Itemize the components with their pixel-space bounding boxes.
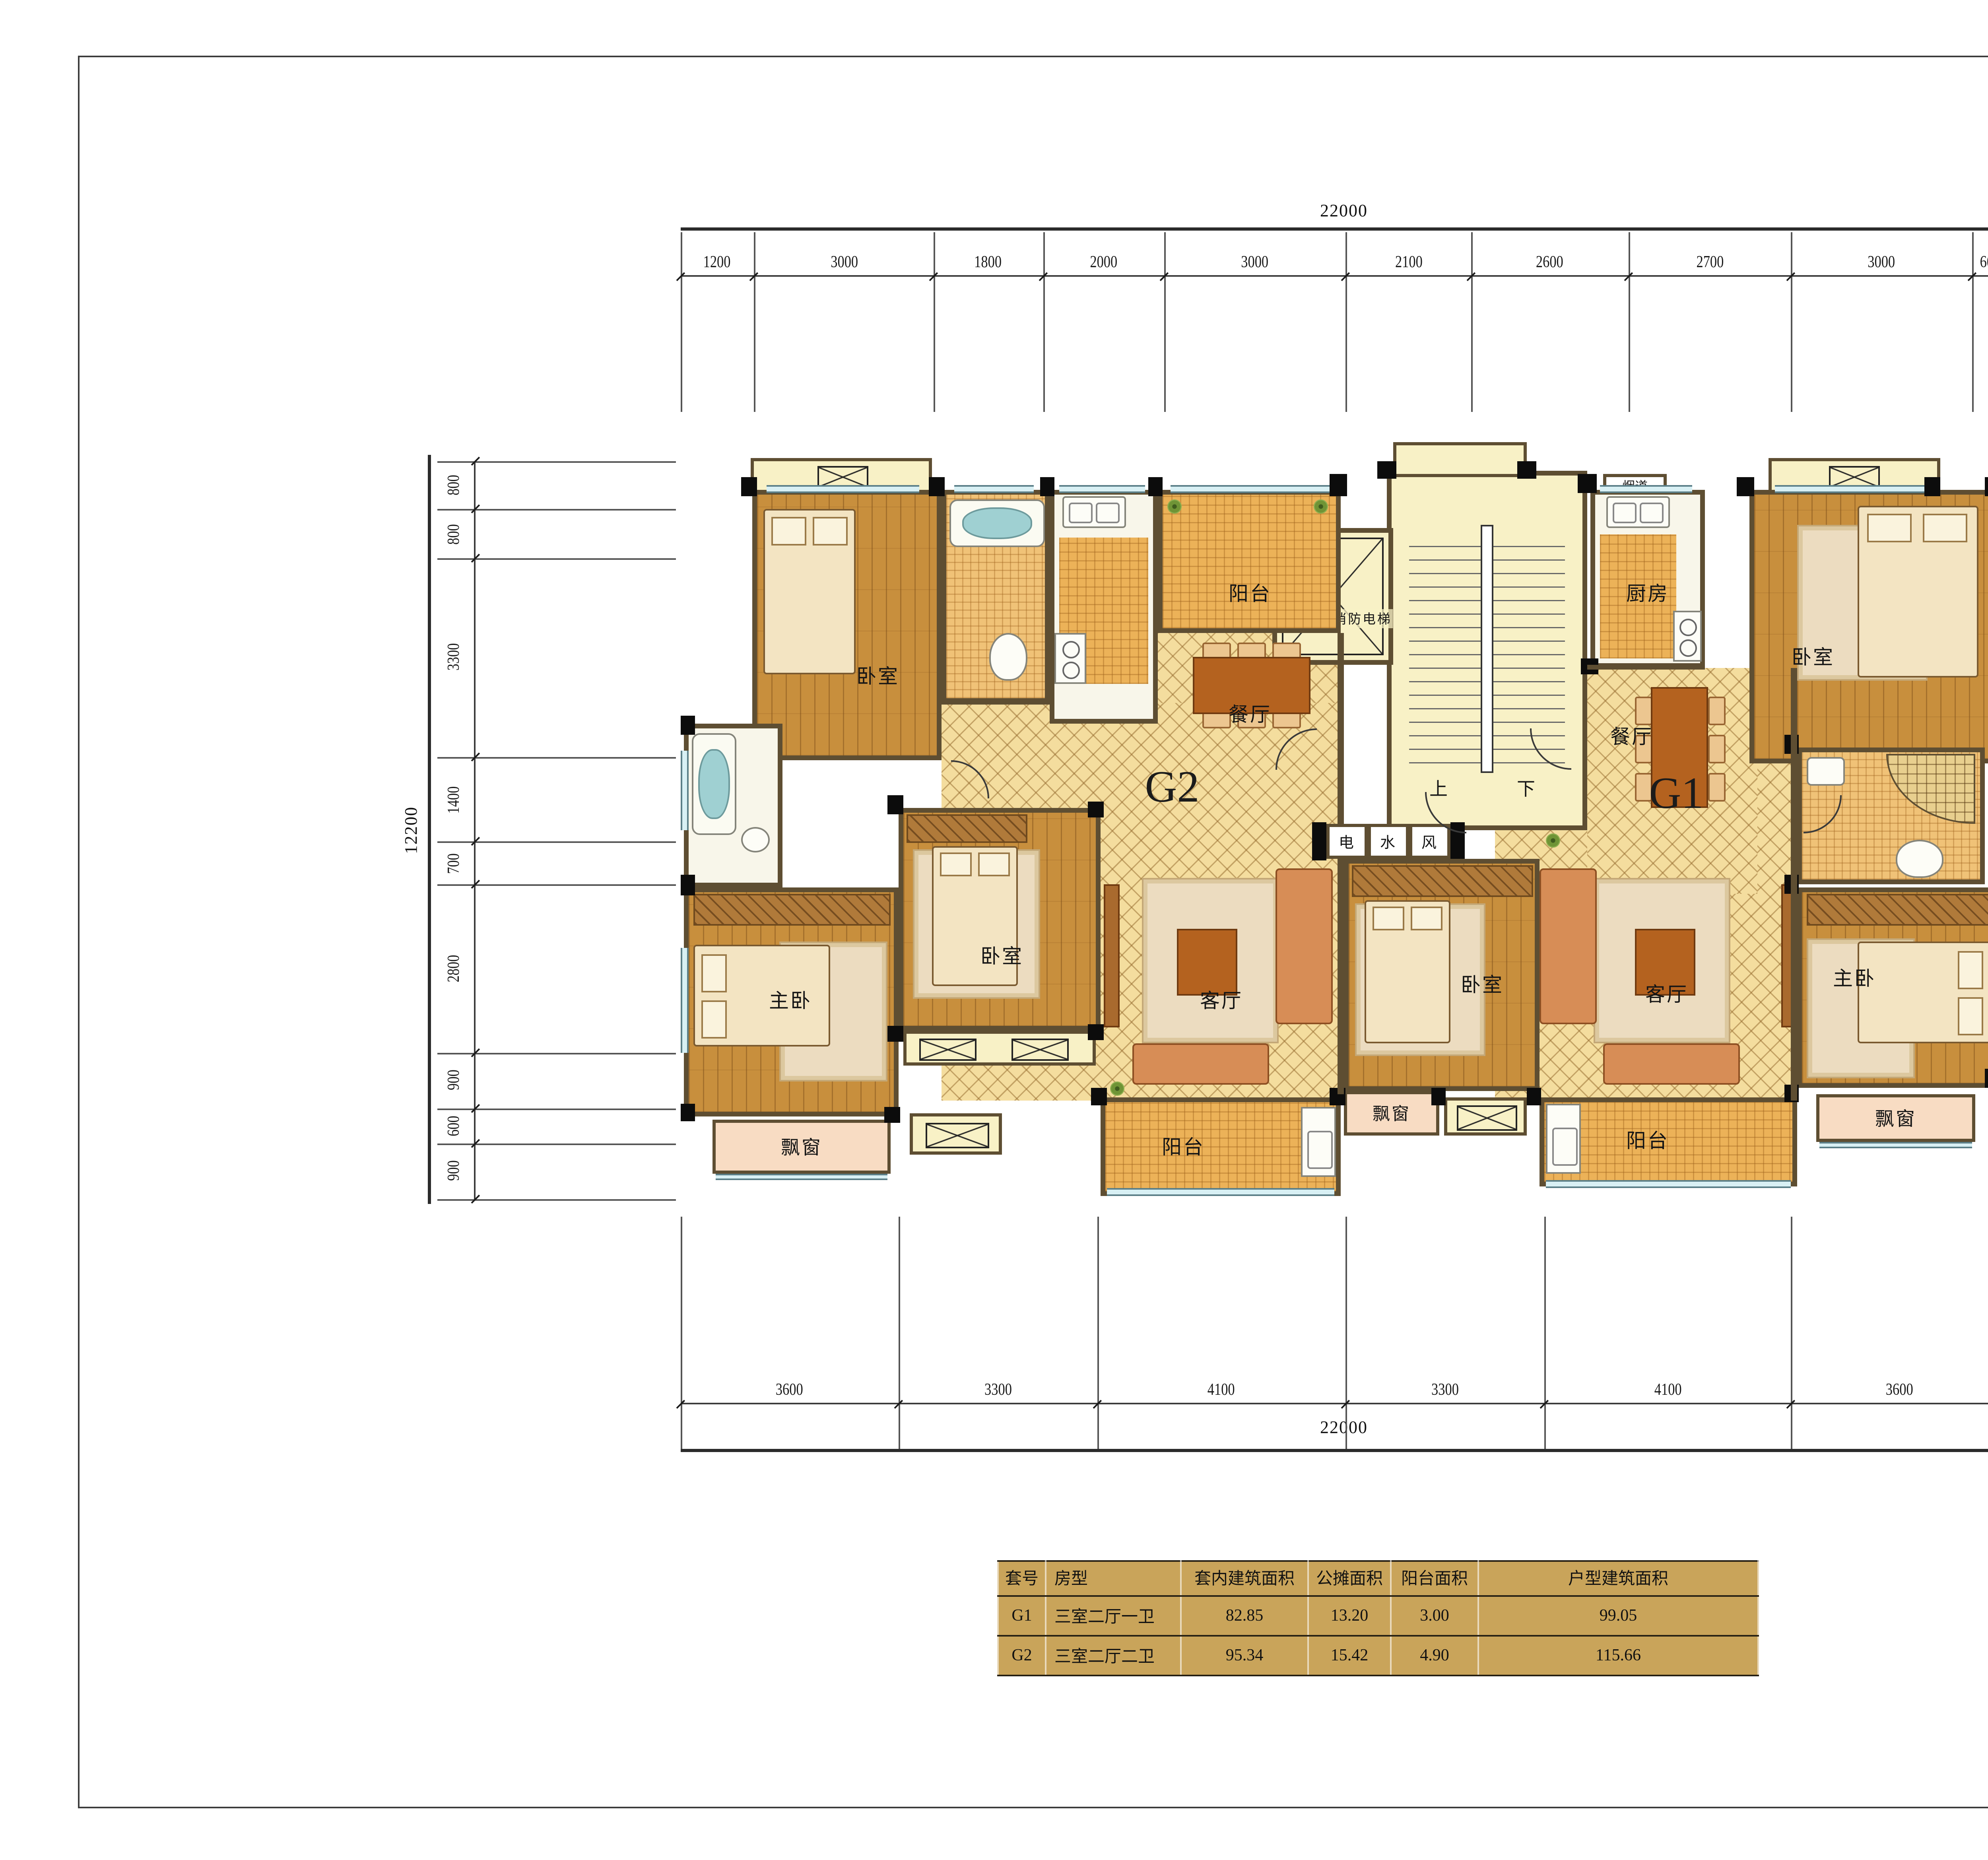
g2-balcony-north — [1158, 490, 1341, 633]
g1-balcony-laundry-sink — [1546, 1104, 1581, 1174]
g1-bath-toilet — [1896, 840, 1943, 878]
g2-bedroom-top-bed — [763, 509, 856, 674]
table-cell-r0-c2: 82.85 — [1181, 1596, 1308, 1636]
g1-balcony-south-label: 阳台 — [1626, 1124, 1669, 1154]
column — [1985, 477, 1988, 496]
wall — [1587, 665, 1705, 670]
column — [1578, 474, 1597, 493]
stair-center-rail — [1481, 525, 1493, 773]
g1-kitchen-stove — [1673, 611, 1702, 662]
column — [1924, 477, 1940, 496]
g2-balcony-north-window — [1171, 485, 1330, 492]
wall — [1338, 859, 1344, 1094]
column — [1527, 1088, 1541, 1105]
g2-kitchen-stove — [1054, 633, 1086, 684]
table-cell-r1-c0: G2 — [998, 1636, 1046, 1676]
wall — [1338, 633, 1344, 827]
g2-kitchen-sink — [1062, 496, 1126, 528]
g2-balcony-north-plant-left — [1167, 499, 1182, 514]
table-cell-r1-c3: 15.42 — [1308, 1636, 1391, 1676]
column — [1148, 477, 1163, 496]
g1-bedroom-mid-bed — [1365, 900, 1450, 1043]
g1-living-plant — [1546, 833, 1560, 848]
column — [1040, 477, 1054, 496]
g1-unit-label: G1 — [1649, 770, 1704, 821]
column — [887, 1026, 903, 1042]
water-shaft-label: 水 — [1380, 830, 1397, 852]
g1-master-bay-glass — [1819, 1142, 1972, 1148]
wall — [1791, 668, 1797, 1101]
table-cell-r0-c0: G1 — [998, 1596, 1046, 1636]
g1-south-xbay-window — [1457, 1105, 1517, 1131]
column — [1377, 461, 1396, 479]
g1-bedroom-mid-label: 卧室 — [1461, 968, 1504, 998]
column — [1985, 1069, 1988, 1088]
table-cell-r0-c3: 13.20 — [1308, 1596, 1391, 1636]
g2-balcony-north-plant-right — [1314, 499, 1328, 514]
table-cell-r0-c4: 3.00 — [1391, 1596, 1478, 1636]
g1-sofa-long — [1603, 1043, 1740, 1085]
g2-balcony-laundry-sink — [1301, 1107, 1336, 1177]
g1-living-label: 客厅 — [1645, 977, 1688, 1008]
column — [1091, 1088, 1107, 1105]
wall — [1050, 719, 1158, 724]
g1-bedroom-top-label: 卧室 — [1792, 640, 1835, 670]
g1-bedroom-top-bed — [1858, 506, 1978, 678]
g2-bath-top-toilet — [989, 633, 1027, 681]
g1-bedroom-mid-wardrobe — [1352, 865, 1533, 897]
g2-master-left-window — [681, 948, 688, 1053]
table-header-5: 户型建筑面积 — [1478, 1561, 1758, 1596]
table-cell-r1-c2: 95.34 — [1181, 1636, 1308, 1676]
g2-dining-label: 餐厅 — [1229, 697, 1272, 728]
g1-master-wardrobe — [1807, 894, 1988, 926]
g2-tv-cabinet — [1104, 884, 1120, 1027]
g2-bedroom-mid-wardrobe — [907, 814, 1027, 843]
g2-bedroom-mid-sill-window-1 — [919, 1039, 977, 1061]
column — [929, 477, 945, 496]
column — [1088, 802, 1104, 817]
table-cell-r1-c4: 4.90 — [1391, 1636, 1478, 1676]
g2-bedroom-mid-label: 卧室 — [980, 939, 1023, 969]
table-header-4: 阳台面积 — [1391, 1561, 1478, 1596]
g2-bedroom-mid-sill-window-2 — [1011, 1039, 1069, 1061]
g1-balcony-south-rail — [1546, 1180, 1791, 1187]
g1-mid-bay-label: 飘窗 — [1373, 1101, 1411, 1126]
g1-kitchen-window — [1600, 485, 1692, 492]
g2-bath-left-window — [681, 751, 688, 830]
g2-master-bath-tub — [692, 733, 736, 835]
g1-kitchen-sink — [1606, 496, 1670, 528]
column — [1088, 1024, 1104, 1040]
table-header-3: 公摊面积 — [1308, 1561, 1391, 1596]
g2-sofa-side — [1276, 868, 1333, 1024]
stair-flight-left — [1409, 534, 1482, 763]
shaft-strip-left-column — [1312, 822, 1326, 860]
column — [741, 477, 757, 496]
g2-living-label: 客厅 — [1200, 984, 1243, 1014]
table-cell-r1-c1: 三室二厅二卫 — [1046, 1636, 1181, 1676]
g2-balcony-south-rail — [1107, 1188, 1334, 1195]
column — [1330, 474, 1347, 496]
column — [681, 875, 695, 895]
g1-sofa-side — [1540, 868, 1597, 1024]
column — [1517, 461, 1536, 479]
g2-master-bay-glass — [716, 1174, 887, 1180]
g1-kitchen-label: 厨房 — [1626, 577, 1669, 607]
g1-bath-sink — [1807, 757, 1845, 786]
g2-bath-top-tub — [949, 499, 1045, 547]
g1-dining-chair — [1708, 735, 1726, 763]
g2-kitchen-window — [1059, 485, 1145, 492]
g2-south-xbay-window — [926, 1123, 989, 1148]
g2-balcony-south-label: 阳台 — [1162, 1130, 1205, 1160]
column — [887, 795, 903, 814]
column — [1431, 1088, 1446, 1105]
g2-master-bay-label: 飘窗 — [781, 1133, 822, 1160]
g2-master-label: 主卧 — [769, 984, 812, 1014]
g2-bedroom-top-label: 卧室 — [856, 659, 899, 689]
g1-dining-chair — [1708, 697, 1726, 725]
g2-master-wardrobe — [693, 894, 891, 926]
floor-plan-sheet: 22000 1200300018002000300021002600270030… — [0, 0, 1988, 1860]
table-cell-r0-c5: 99.05 — [1478, 1596, 1758, 1636]
stairwell-top-bay — [1393, 442, 1527, 477]
g2-bedroom-top-window — [767, 485, 919, 492]
g2-living-plant — [1110, 1081, 1124, 1096]
g1-dining-label: 餐厅 — [1610, 720, 1653, 750]
column — [1737, 477, 1754, 496]
g2-sofa-long — [1132, 1043, 1269, 1085]
g2-balcony-north-label: 阳台 — [1229, 577, 1272, 607]
table-cell-r0-c1: 三室二厅一卫 — [1046, 1596, 1181, 1636]
g2-bath-top-window — [954, 485, 1034, 492]
table-header-2: 套内建筑面积 — [1181, 1561, 1308, 1596]
g2-master-bath-sink — [741, 827, 770, 852]
table-cell-r1-c5: 115.66 — [1478, 1636, 1758, 1676]
unit-area-table: 套号房型套内建筑面积公摊面积阳台面积户型建筑面积G1三室二厅一卫82.8513.… — [997, 1560, 1759, 1676]
table-header-1: 房型 — [1046, 1561, 1181, 1596]
vent-shaft-label: 风 — [1421, 830, 1438, 852]
g2-unit-label: G2 — [1145, 763, 1200, 814]
g1-dining-chair — [1708, 773, 1726, 802]
column — [681, 716, 695, 735]
electric-shaft-label: 电 — [1339, 830, 1355, 852]
stair-down-label: 下 — [1517, 776, 1537, 802]
column — [884, 1107, 900, 1123]
table-header-0: 套号 — [998, 1561, 1046, 1596]
wall — [942, 700, 1050, 705]
column — [681, 1104, 695, 1121]
g1-master-label: 主卧 — [1833, 961, 1876, 992]
g1-master-bay-label: 飘窗 — [1875, 1105, 1916, 1132]
g1-bedroom-top-window — [1775, 485, 1928, 492]
g1-master-bed — [1858, 942, 1988, 1043]
